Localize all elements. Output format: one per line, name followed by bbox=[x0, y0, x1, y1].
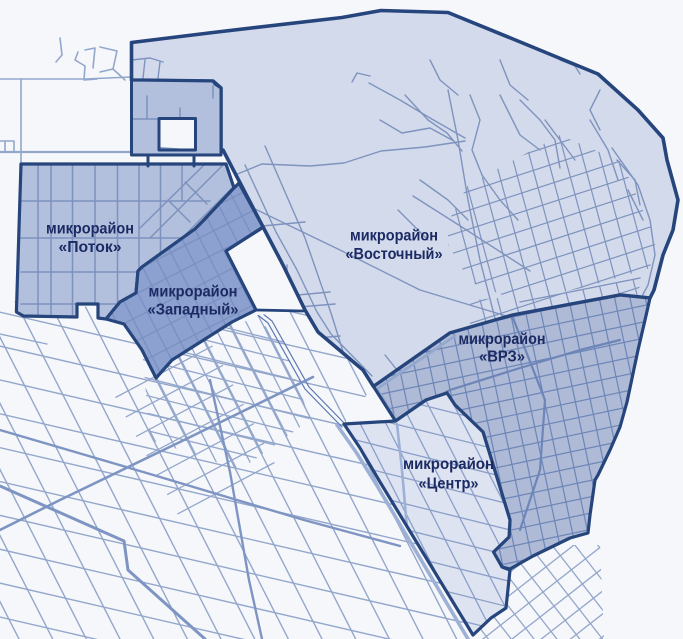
svg-text:«Западный»: «Западный» bbox=[148, 302, 239, 319]
svg-text:«Центр»: «Центр» bbox=[419, 476, 479, 493]
svg-text:микрорайон: микрорайон bbox=[403, 456, 494, 473]
svg-text:микрорайон: микрорайон bbox=[46, 221, 134, 238]
svg-text:микрорайон: микрорайон bbox=[459, 331, 546, 348]
svg-text:микрорайон: микрорайон bbox=[149, 284, 238, 301]
svg-text:«Поток»: «Поток» bbox=[59, 239, 122, 256]
svg-text:«ВРЗ»: «ВРЗ» bbox=[479, 349, 525, 366]
svg-text:микрорайон: микрорайон bbox=[350, 228, 438, 245]
svg-text:«Восточный»: «Восточный» bbox=[346, 246, 443, 263]
